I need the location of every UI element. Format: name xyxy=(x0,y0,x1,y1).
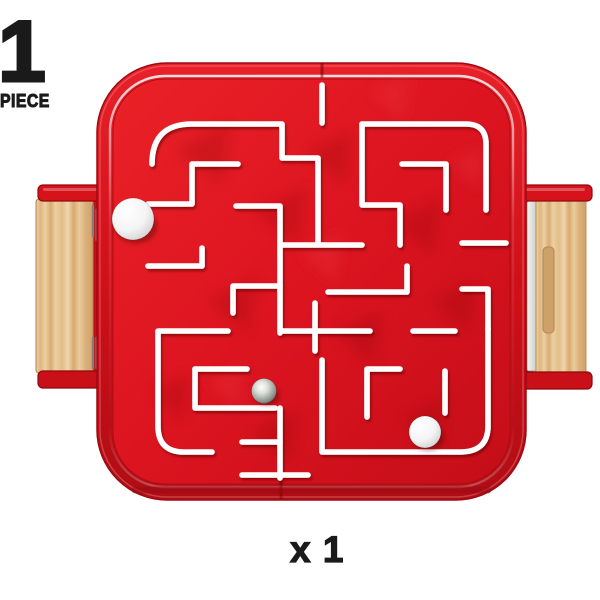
right-clamp-bottom xyxy=(518,372,592,389)
maze-ball-white xyxy=(409,416,441,448)
right-wood-groove xyxy=(543,247,554,333)
quantity-multiplier-label: x 1 xyxy=(290,531,344,568)
right-clamp-top xyxy=(518,185,592,201)
left-wood-slat xyxy=(36,199,93,373)
maze-ball-white xyxy=(112,198,154,240)
product-image: 1 PIECE xyxy=(0,0,600,600)
top-mold-seam xyxy=(321,63,324,78)
left-clamp-top xyxy=(38,185,106,201)
left-clamp-bottom xyxy=(38,371,106,388)
maze-ball-steel xyxy=(252,379,277,404)
right-handle xyxy=(517,185,592,389)
maze-floor xyxy=(113,79,510,484)
maze-toy-illustration xyxy=(0,0,600,600)
